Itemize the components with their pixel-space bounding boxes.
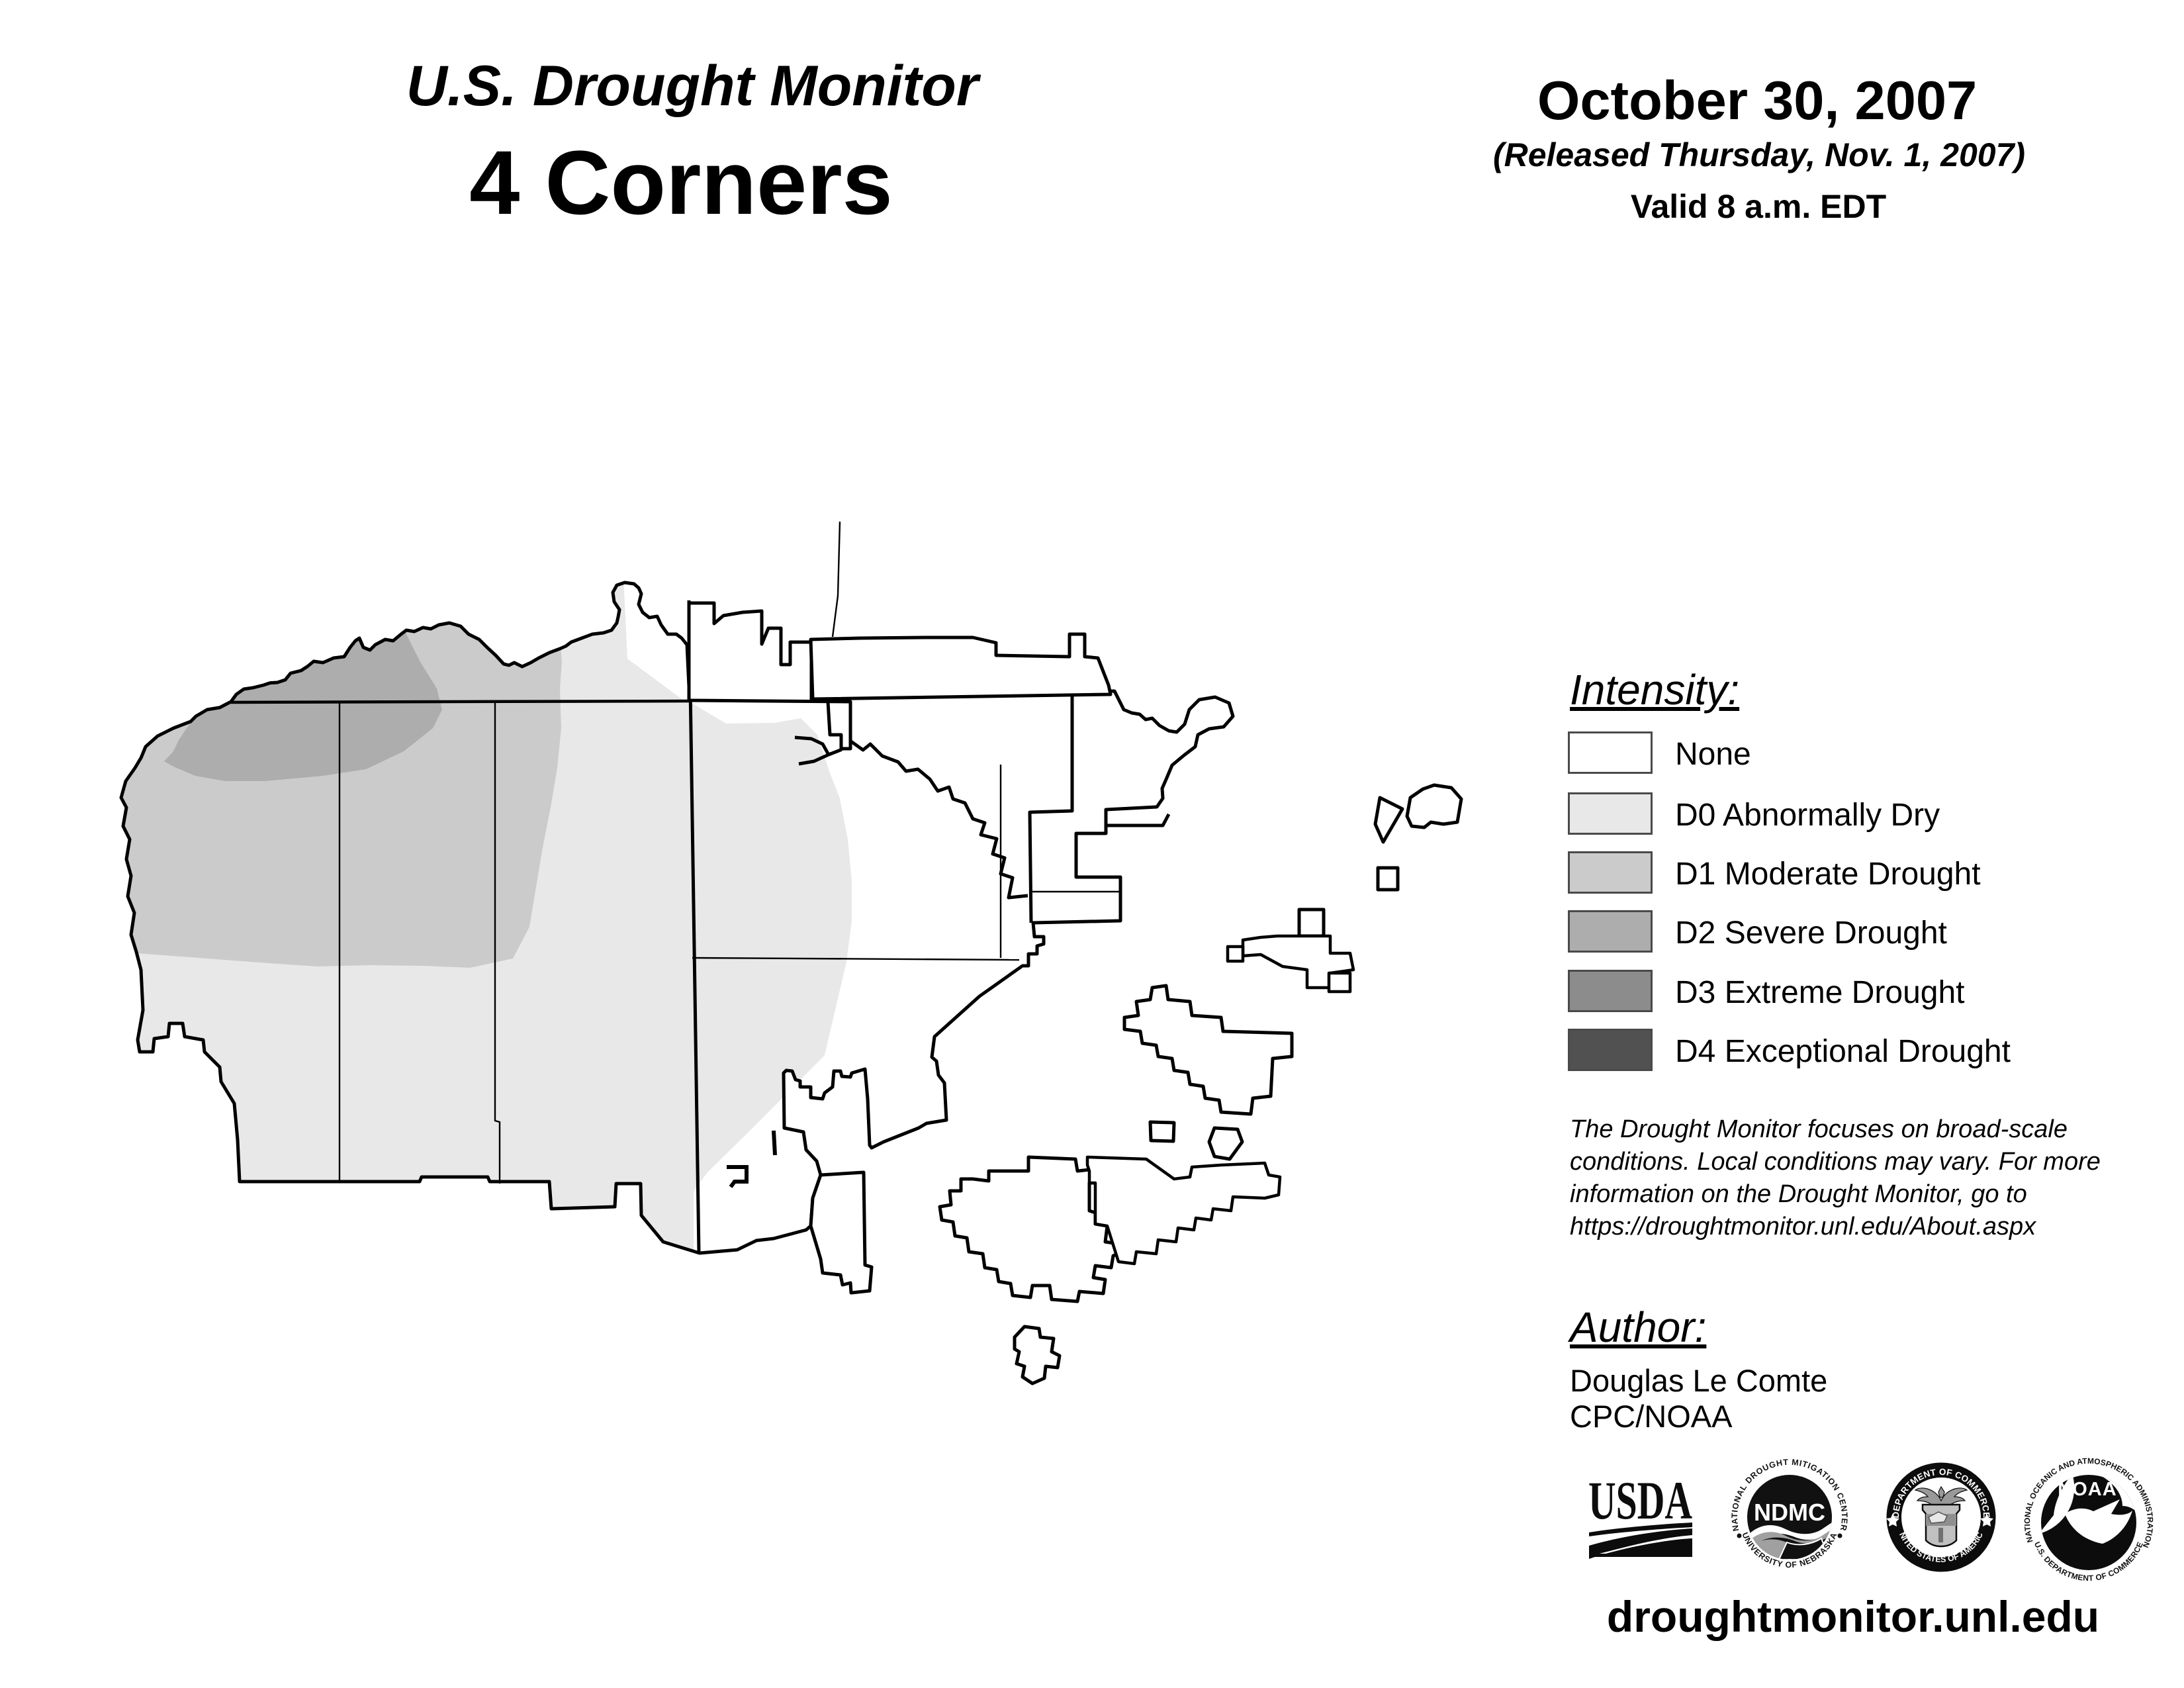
svg-text:NDMC: NDMC bbox=[1754, 1499, 1825, 1526]
svg-text:NOAA: NOAA bbox=[2058, 1479, 2116, 1500]
svg-text:USDA: USDA bbox=[1588, 1470, 1692, 1530]
svg-text:UNITED STATES OF AMERICA: UNITED STATES OF AMERICA bbox=[0, 0, 1985, 1564]
